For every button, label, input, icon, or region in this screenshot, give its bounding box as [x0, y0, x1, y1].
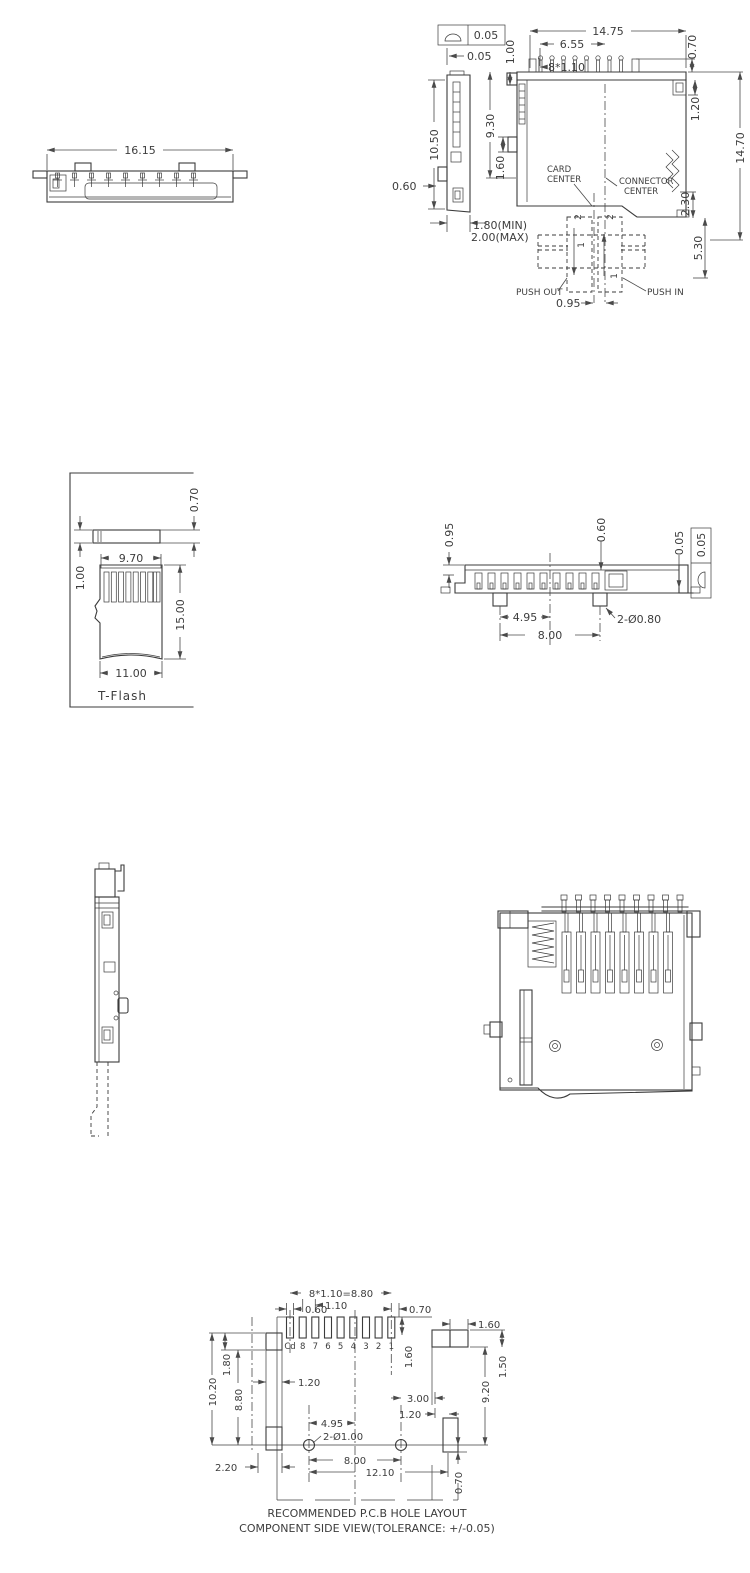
dim-0-70-bottom-right: 0.70	[443, 1433, 467, 1494]
svg-text:15.00: 15.00	[174, 599, 187, 631]
svg-text:8.00: 8.00	[344, 1456, 366, 1467]
bottom-contacts	[475, 573, 599, 589]
svg-text:2.30: 2.30	[679, 192, 692, 217]
dim-1-50: 1.50	[470, 1330, 509, 1378]
svg-text:9.20: 9.20	[481, 1381, 492, 1403]
push-out-label: PUSH OUT	[516, 278, 567, 298]
front-contact-pins	[53, 173, 198, 187]
svg-text:11.00: 11.00	[115, 667, 147, 680]
svg-text:0.60: 0.60	[392, 180, 417, 193]
svg-text:0.95: 0.95	[443, 523, 456, 548]
svg-text:0.05: 0.05	[673, 531, 686, 556]
card-center-label: CARD CENTER	[547, 165, 592, 206]
top-pins	[542, 895, 688, 912]
svg-text:4.95: 4.95	[321, 1419, 343, 1430]
svg-text:3: 3	[363, 1342, 368, 1352]
dim-16-15: 16.15	[124, 144, 156, 157]
dim-pitch-total: 8*1.10=8.80	[290, 1289, 391, 1300]
dim-1-80: 1.80	[222, 1333, 233, 1376]
dim-1-60-right-top: 1.60	[442, 1319, 500, 1331]
svg-text:8*1.10=8.80: 8*1.10=8.80	[309, 1289, 373, 1300]
dim-1-80-2-00: 1.80(MIN) 2.00(MAX)	[430, 215, 529, 244]
sequence-2-label: 2	[606, 214, 616, 220]
dim-2-20: 2.20	[215, 1453, 295, 1474]
side-view: 0.05 0.05 10.50 0.60 1.80(MIN) 2.00(MAX)	[390, 10, 750, 312]
svg-text:0.05: 0.05	[467, 50, 492, 63]
dim-2-30: 2.30	[679, 192, 696, 218]
layout-title: RECOMMENDED P.C.B HOLE LAYOUT COMPONENT …	[239, 1507, 495, 1535]
svg-text:8: 8	[300, 1342, 305, 1352]
dim-5-30: 5.30	[692, 218, 708, 278]
top-view	[470, 875, 710, 1120]
svg-text:7: 7	[313, 1342, 318, 1352]
pin-pads	[287, 1317, 395, 1338]
svg-text:1.20: 1.20	[689, 97, 702, 122]
profile-part	[95, 863, 128, 1062]
svg-text:PUSH IN: PUSH IN	[647, 288, 684, 298]
svg-text:0.70: 0.70	[188, 488, 201, 513]
svg-text:2-Ø0.80: 2-Ø0.80	[617, 613, 661, 626]
pin-labels: Cd 8 7 6 5 4 3 2 1	[284, 1342, 394, 1352]
dim-0-95-bottom: 0.95	[443, 523, 464, 588]
tol-value: 0.05	[695, 533, 708, 558]
detect-spring	[528, 921, 556, 967]
svg-text:0.70: 0.70	[409, 1305, 431, 1316]
dim-1-20-left: 1.20	[253, 1378, 320, 1389]
svg-text:CENTER: CENTER	[547, 175, 581, 185]
svg-text:2.00(MAX): 2.00(MAX)	[471, 231, 529, 244]
front-part-outline	[33, 163, 247, 202]
dim-10-50: 10.50	[428, 80, 445, 209]
svg-text:2: 2	[376, 1342, 381, 1352]
svg-text:8.80: 8.80	[234, 1389, 245, 1411]
svg-text:6: 6	[325, 1342, 330, 1352]
svg-text:4.95: 4.95	[513, 611, 538, 624]
flatness-tolerance-frame: 0.05	[438, 25, 505, 45]
dim-0-05: 0.05	[447, 48, 492, 65]
end-profile-part	[438, 71, 470, 212]
svg-text:14.70: 14.70	[734, 132, 747, 164]
svg-text:CENTER: CENTER	[624, 187, 658, 197]
dim-11-00: 11.00	[100, 661, 162, 680]
tol-value: 0.05	[474, 29, 499, 42]
svg-text:8*1.10: 8*1.10	[548, 61, 585, 74]
dim-3-00: 3.00	[391, 1392, 445, 1405]
dim-0-60-bottom: 0.60	[595, 518, 608, 570]
front-view: 16.15	[25, 133, 260, 228]
title-line-1: RECOMMENDED P.C.B HOLE LAYOUT	[267, 1507, 467, 1520]
svg-text:2-Ø1.00: 2-Ø1.00	[323, 1431, 363, 1443]
dim-1-00-card: 1.00	[74, 516, 92, 590]
sequence-2-label: 2	[574, 214, 584, 220]
dim-1-60-vertical: 1.60	[402, 1317, 415, 1368]
svg-text:5.30: 5.30	[692, 236, 705, 261]
dim-0-70-side: 0.70	[636, 35, 699, 72]
dim-1-20-right: 1.20	[399, 1408, 459, 1421]
dim-4-95-pcb: 4.95	[309, 1419, 355, 1430]
pcb-layout-view: Cd 8 7 6 5 4 3 2 1 0.60 8*1.10=8.80	[195, 1255, 530, 1555]
engineering-drawing-sheet: 16.15 0.05 0.05	[0, 0, 750, 1573]
svg-text:1.20: 1.20	[399, 1410, 421, 1421]
svg-text:8.00: 8.00	[538, 629, 563, 642]
sequence-1-label: 1	[610, 273, 620, 279]
svg-text:2.20: 2.20	[215, 1463, 237, 1474]
svg-text:1.60: 1.60	[478, 1320, 500, 1331]
tflash-label: T-Flash	[97, 689, 147, 703]
svg-text:1.20: 1.20	[298, 1378, 320, 1389]
dim-1-20: 1.20	[688, 80, 702, 121]
svg-text:14.75: 14.75	[592, 25, 624, 38]
connector-center-label: CONNECTOR CENTER	[606, 177, 674, 197]
svg-text:0.60: 0.60	[305, 1305, 327, 1316]
dim-holes-pcb: 2-Ø1.00	[313, 1431, 363, 1443]
card-contacts	[104, 572, 160, 602]
dim-8-00-pcb: 8.00	[309, 1456, 401, 1467]
tflash-view: 0.70 1.00 9.70 15.00 11.00	[60, 460, 220, 720]
card-travel-dashed: 2 1 2 1	[538, 214, 645, 292]
dim-1-60-side: 1.60	[494, 137, 508, 180]
card-rail	[520, 990, 532, 1085]
svg-text:12.10: 12.10	[366, 1468, 395, 1479]
top-part-outline	[484, 911, 702, 1098]
svg-text:1.10: 1.10	[325, 1301, 347, 1312]
dim-posts: 2-Ø0.80	[606, 608, 661, 626]
dim-15-00: 15.00	[164, 565, 187, 659]
title-line-2: COMPONENT SIDE VIEW(TOLERANCE: +/-0.05)	[239, 1522, 495, 1535]
svg-text:0.70: 0.70	[686, 35, 699, 60]
side-profile-view	[85, 855, 195, 1150]
contact-slots	[562, 913, 673, 993]
card-front-outline	[95, 565, 162, 659]
svg-text:9.30: 9.30	[484, 114, 497, 139]
svg-text:1.50: 1.50	[498, 1356, 509, 1378]
sequence-1-label: 1	[577, 242, 587, 248]
svg-text:9.70: 9.70	[119, 552, 144, 565]
push-in-label: PUSH IN	[623, 278, 684, 298]
svg-text:6.55: 6.55	[560, 38, 585, 51]
main-section-part	[507, 72, 689, 217]
dim-0-70-pcb: 0.70	[383, 1303, 431, 1317]
svg-text:1.00: 1.00	[74, 566, 87, 591]
svg-text:1.80: 1.80	[222, 1354, 233, 1376]
svg-text:10.20: 10.20	[208, 1378, 219, 1407]
dim-1-00: 1.00	[504, 40, 517, 85]
flatness-tolerance-frame-vertical: 0.05	[691, 528, 711, 598]
card-side-profile	[93, 530, 160, 543]
dim-0-95-side: 0.95	[556, 297, 618, 310]
dim-9-20: 9.20	[470, 1347, 492, 1445]
rivet-holes	[550, 1040, 663, 1052]
bottom-view: 0.95 0.60 0.05 0.05 4.95 8.00 2-Ø0.80	[435, 495, 735, 660]
flatness-symbol-icon	[698, 572, 705, 588]
svg-text:5: 5	[338, 1342, 343, 1352]
flatness-symbol-icon	[445, 34, 461, 41]
svg-text:3.00: 3.00	[407, 1394, 429, 1405]
svg-text:0.70: 0.70	[454, 1472, 465, 1494]
dim-0-60-side: 0.60	[392, 180, 436, 193]
svg-text:10.50: 10.50	[428, 129, 441, 161]
dim-0-70-card: 0.70	[160, 488, 201, 557]
card-dashed	[91, 1062, 108, 1138]
dim-4-95-bottom: 4.95	[500, 606, 550, 624]
svg-text:0.60: 0.60	[595, 518, 608, 543]
svg-text:CONNECTOR: CONNECTOR	[619, 177, 674, 187]
svg-text:0.95: 0.95	[556, 297, 581, 310]
svg-text:1.00: 1.00	[504, 40, 517, 65]
dim-12-10: 12.10	[309, 1453, 448, 1479]
svg-text:1.60: 1.60	[494, 156, 507, 181]
svg-text:1.60: 1.60	[404, 1346, 415, 1368]
dim-9-70: 9.70	[101, 552, 161, 568]
svg-text:CARD: CARD	[547, 165, 572, 175]
